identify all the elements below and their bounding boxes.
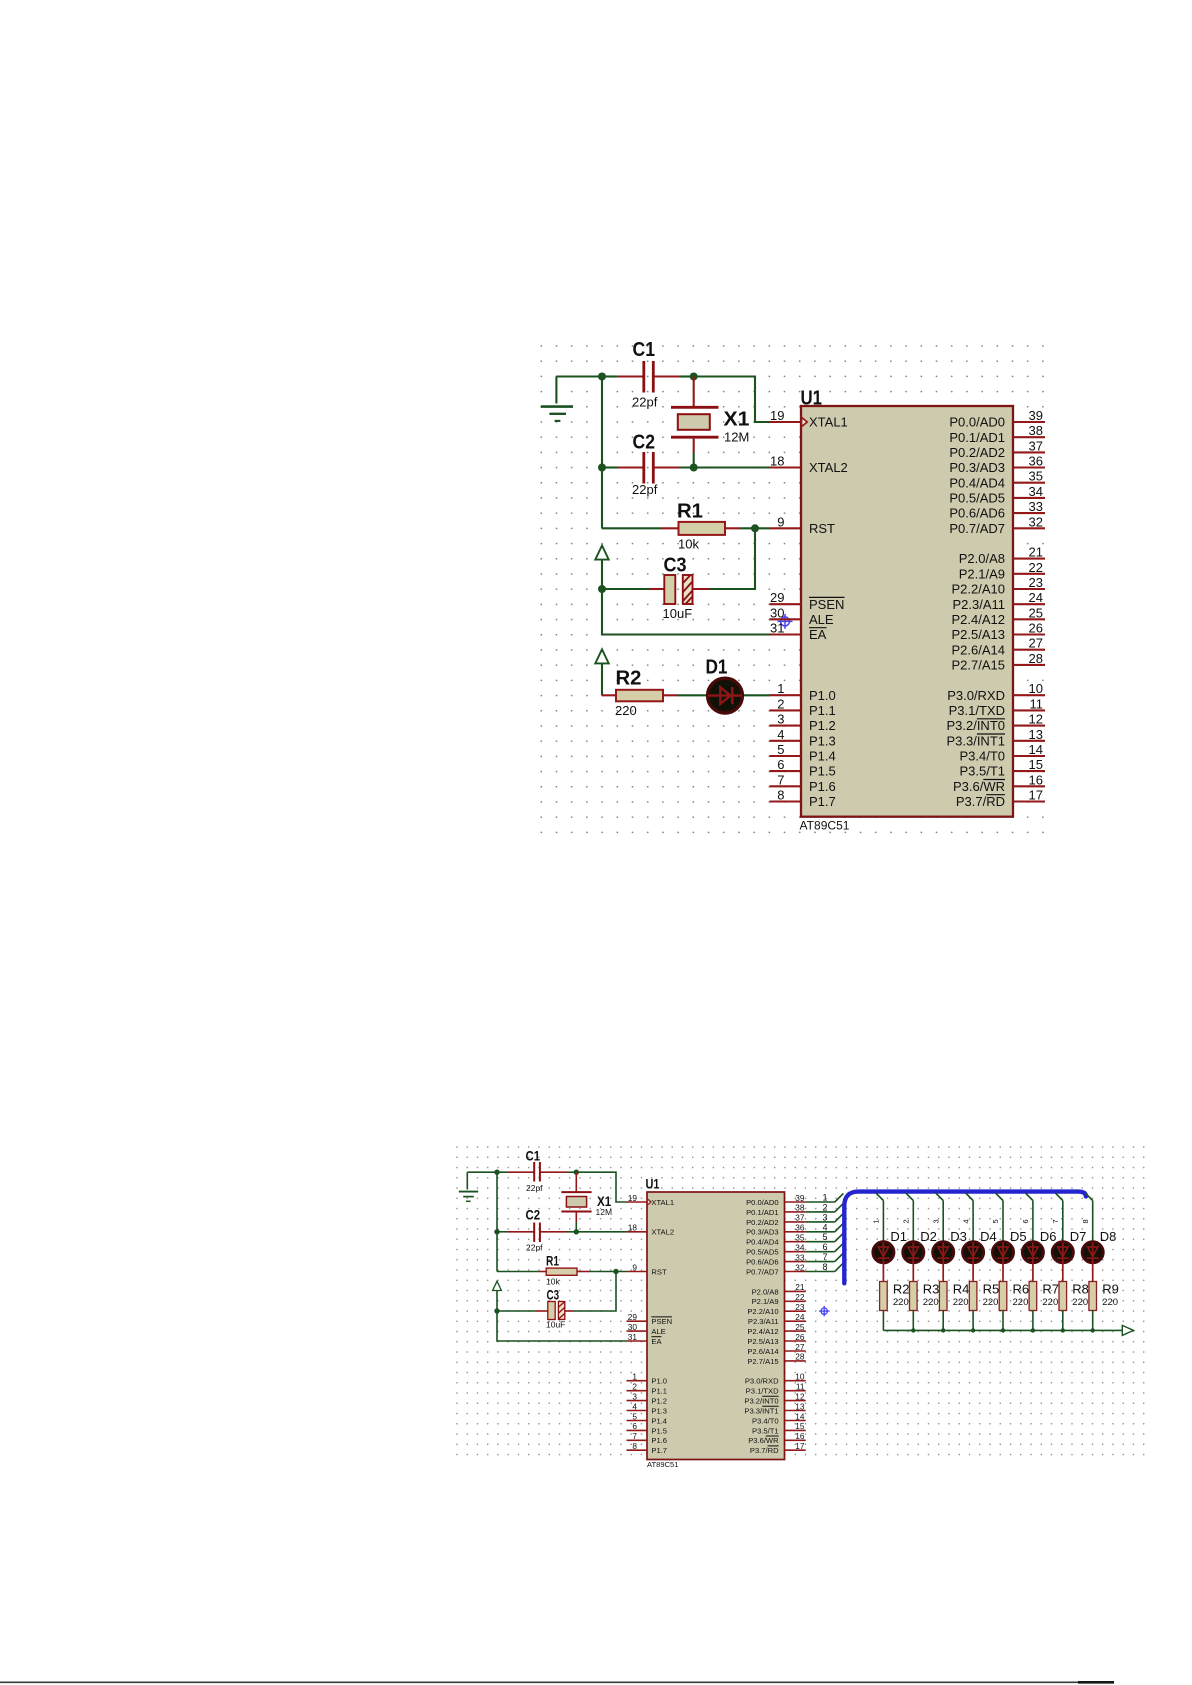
svg-text:ALE: ALE	[651, 1327, 665, 1336]
svg-text:26: 26	[795, 1332, 805, 1342]
svg-text:12: 12	[795, 1391, 805, 1401]
svg-text:U1: U1	[646, 1177, 660, 1192]
svg-text:D1: D1	[890, 1229, 907, 1244]
svg-text:P1.0: P1.0	[651, 1377, 667, 1386]
svg-text:R2: R2	[893, 1282, 910, 1297]
svg-text:AT89C51: AT89C51	[647, 1462, 679, 1469]
svg-text:17: 17	[795, 1441, 805, 1451]
svg-text:P2.1/A9: P2.1/A9	[752, 1297, 779, 1306]
svg-text:P3.6/WR: P3.6/WR	[953, 779, 1005, 794]
svg-text:P2.2/A10: P2.2/A10	[747, 1307, 778, 1316]
svg-text:P3.2/INT0: P3.2/INT0	[946, 718, 1005, 733]
svg-text:XTAL1: XTAL1	[809, 415, 848, 430]
svg-text:34: 34	[1029, 484, 1043, 499]
svg-text:34: 34	[795, 1243, 805, 1253]
svg-text:2: 2	[902, 1219, 911, 1223]
svg-text:P1.3: P1.3	[651, 1406, 667, 1415]
svg-text:10k: 10k	[546, 1277, 560, 1287]
svg-text:12M: 12M	[724, 430, 749, 445]
svg-text:R1: R1	[546, 1253, 559, 1268]
svg-text:10uF: 10uF	[546, 1320, 565, 1330]
svg-text:R7: R7	[1042, 1282, 1059, 1297]
svg-text:7: 7	[777, 772, 784, 787]
svg-text:P0.7/AD7: P0.7/AD7	[746, 1267, 779, 1276]
svg-text:P1.7: P1.7	[651, 1446, 667, 1455]
svg-text:7: 7	[632, 1431, 637, 1441]
svg-text:220: 220	[983, 1297, 999, 1308]
svg-text:P0.0/AD0: P0.0/AD0	[949, 415, 1005, 430]
svg-text:U1: U1	[801, 388, 823, 410]
svg-text:C3: C3	[664, 555, 687, 577]
svg-text:P0.2/AD2: P0.2/AD2	[746, 1218, 779, 1227]
svg-text:27: 27	[1029, 636, 1043, 651]
svg-text:35: 35	[795, 1233, 805, 1243]
svg-text:1: 1	[872, 1219, 881, 1223]
svg-text:28: 28	[1029, 651, 1043, 666]
svg-text:P3.3/INT1: P3.3/INT1	[946, 733, 1005, 748]
svg-text:D8: D8	[1100, 1229, 1117, 1244]
svg-text:23: 23	[795, 1302, 805, 1312]
svg-text:18: 18	[770, 454, 784, 469]
svg-text:1: 1	[632, 1372, 637, 1382]
svg-text:8: 8	[777, 788, 784, 803]
svg-text:13: 13	[1029, 727, 1043, 742]
svg-text:2: 2	[777, 696, 784, 711]
svg-text:P3.0/RXD: P3.0/RXD	[947, 688, 1005, 703]
svg-text:18: 18	[628, 1223, 638, 1233]
svg-text:P0.2/AD2: P0.2/AD2	[949, 445, 1005, 460]
svg-text:5: 5	[632, 1411, 637, 1421]
svg-text:P3.1/TXD: P3.1/TXD	[746, 1387, 779, 1396]
svg-text:P1.0: P1.0	[809, 688, 836, 703]
svg-text:10: 10	[795, 1372, 805, 1382]
svg-text:21: 21	[795, 1282, 805, 1292]
svg-text:16: 16	[795, 1431, 805, 1441]
svg-text:1: 1	[777, 681, 784, 696]
svg-text:220: 220	[1072, 1297, 1088, 1308]
svg-text:38: 38	[795, 1203, 805, 1213]
svg-text:12M: 12M	[596, 1207, 613, 1217]
svg-text:RST: RST	[809, 521, 835, 536]
svg-text:11: 11	[796, 1382, 805, 1392]
svg-text:P2.5/A13: P2.5/A13	[747, 1337, 778, 1346]
svg-text:15: 15	[1029, 757, 1043, 772]
svg-text:11: 11	[1030, 696, 1044, 711]
svg-text:27: 27	[795, 1342, 805, 1352]
svg-text:R1: R1	[677, 501, 703, 523]
svg-text:P0.6/AD6: P0.6/AD6	[949, 506, 1005, 521]
svg-text:23: 23	[1029, 575, 1043, 590]
svg-text:29: 29	[628, 1312, 638, 1322]
svg-text:P2.7/A15: P2.7/A15	[952, 658, 1006, 673]
svg-text:220: 220	[893, 1297, 909, 1308]
svg-text:3: 3	[822, 1212, 827, 1222]
svg-text:P0.4/AD4: P0.4/AD4	[949, 475, 1005, 490]
svg-text:P0.1/AD1: P0.1/AD1	[949, 430, 1005, 445]
svg-text:XTAL2: XTAL2	[809, 460, 848, 475]
svg-text:D7: D7	[1070, 1229, 1087, 1244]
svg-text:19: 19	[628, 1193, 638, 1203]
svg-text:X1: X1	[724, 409, 750, 431]
svg-text:P0.0/AD0: P0.0/AD0	[746, 1198, 779, 1207]
svg-text:3: 3	[931, 1219, 940, 1223]
svg-text:R2: R2	[616, 668, 642, 690]
svg-text:31: 31	[628, 1332, 638, 1342]
svg-text:4: 4	[961, 1219, 970, 1223]
svg-text:10k: 10k	[678, 537, 699, 552]
svg-text:4: 4	[632, 1401, 637, 1411]
svg-text:C3: C3	[547, 1287, 560, 1302]
svg-text:P1.3: P1.3	[809, 733, 836, 748]
svg-text:2: 2	[822, 1202, 827, 1212]
svg-text:22: 22	[795, 1292, 805, 1302]
svg-text:33: 33	[1029, 499, 1043, 514]
svg-text:P3.3/INT1: P3.3/INT1	[744, 1406, 778, 1415]
svg-text:6: 6	[822, 1242, 827, 1252]
svg-text:D2: D2	[920, 1229, 937, 1244]
svg-text:9: 9	[632, 1262, 637, 1272]
svg-text:D6: D6	[1040, 1229, 1057, 1244]
svg-text:29: 29	[770, 590, 784, 605]
svg-text:P2.4/A12: P2.4/A12	[952, 612, 1006, 627]
svg-text:5: 5	[777, 742, 784, 757]
svg-text:P2.7/A15: P2.7/A15	[747, 1357, 778, 1366]
svg-text:D4: D4	[980, 1229, 997, 1244]
svg-text:D5: D5	[1010, 1229, 1027, 1244]
svg-text:10: 10	[1029, 681, 1043, 696]
svg-text:XTAL2: XTAL2	[651, 1228, 674, 1237]
svg-text:P3.5/T1: P3.5/T1	[752, 1426, 779, 1435]
svg-text:EA: EA	[651, 1337, 662, 1346]
svg-text:P0.6/AD6: P0.6/AD6	[746, 1258, 779, 1267]
svg-text:220: 220	[923, 1297, 939, 1308]
svg-text:P0.7/AD7: P0.7/AD7	[949, 521, 1005, 536]
svg-text:P3.5/T1: P3.5/T1	[959, 764, 1005, 779]
svg-text:P2.0/A8: P2.0/A8	[959, 551, 1005, 566]
svg-text:P2.4/A12: P2.4/A12	[747, 1327, 778, 1336]
svg-text:7: 7	[1051, 1219, 1060, 1223]
svg-text:22pf: 22pf	[632, 482, 658, 497]
svg-text:D3: D3	[950, 1229, 967, 1244]
svg-text:24: 24	[1029, 590, 1043, 605]
svg-text:P1.1: P1.1	[651, 1387, 667, 1396]
svg-text:6: 6	[632, 1421, 637, 1431]
svg-text:13: 13	[795, 1401, 805, 1411]
svg-text:3: 3	[632, 1391, 637, 1401]
svg-text:4: 4	[822, 1222, 827, 1232]
svg-text:P1.6: P1.6	[651, 1436, 667, 1445]
svg-text:P3.1/TXD: P3.1/TXD	[949, 703, 1005, 718]
svg-text:P1.6: P1.6	[809, 779, 836, 794]
svg-text:220: 220	[615, 703, 637, 718]
svg-text:22pf: 22pf	[632, 395, 658, 410]
svg-text:RST: RST	[651, 1267, 667, 1276]
svg-text:1: 1	[822, 1193, 827, 1203]
svg-text:P3.7/RD: P3.7/RD	[956, 794, 1005, 809]
svg-text:30: 30	[770, 605, 784, 620]
svg-text:P0.3/AD3: P0.3/AD3	[949, 460, 1005, 475]
svg-text:35: 35	[1029, 469, 1043, 484]
svg-text:P2.5/A13: P2.5/A13	[952, 627, 1006, 642]
svg-text:P3.4/T0: P3.4/T0	[752, 1416, 779, 1425]
svg-text:32: 32	[1029, 514, 1043, 529]
svg-text:P1.5: P1.5	[809, 764, 836, 779]
svg-text:25: 25	[795, 1322, 805, 1332]
svg-text:R9: R9	[1102, 1282, 1119, 1297]
svg-text:15: 15	[795, 1421, 805, 1431]
svg-text:6: 6	[1021, 1219, 1030, 1223]
svg-text:19: 19	[770, 408, 784, 423]
svg-text:39: 39	[795, 1193, 805, 1203]
svg-text:22: 22	[1029, 560, 1043, 575]
svg-text:P1.5: P1.5	[651, 1426, 667, 1435]
svg-text:AT89C51: AT89C51	[800, 819, 850, 833]
svg-text:P2.0/A8: P2.0/A8	[752, 1287, 779, 1296]
svg-text:P2.3/A11: P2.3/A11	[748, 1317, 779, 1326]
svg-text:P1.2: P1.2	[809, 718, 836, 733]
svg-text:D1: D1	[706, 657, 728, 679]
svg-text:7: 7	[822, 1252, 827, 1262]
svg-text:P0.3/AD3: P0.3/AD3	[746, 1228, 779, 1237]
svg-text:P1.1: P1.1	[809, 703, 836, 718]
svg-text:39: 39	[1029, 408, 1043, 423]
svg-text:36: 36	[795, 1223, 805, 1233]
svg-text:26: 26	[1029, 621, 1043, 636]
svg-text:P1.7: P1.7	[809, 794, 836, 809]
svg-text:31: 31	[770, 621, 784, 636]
svg-text:C1: C1	[526, 1148, 541, 1163]
svg-text:9: 9	[777, 514, 784, 529]
svg-text:16: 16	[1029, 772, 1043, 787]
svg-text:P2.6/A14: P2.6/A14	[952, 642, 1006, 657]
svg-text:5: 5	[991, 1219, 1000, 1223]
svg-text:33: 33	[795, 1252, 805, 1262]
svg-text:ALE: ALE	[809, 612, 834, 627]
svg-text:14: 14	[1029, 742, 1043, 757]
svg-text:8: 8	[632, 1441, 637, 1451]
svg-text:5: 5	[822, 1232, 827, 1242]
svg-text:P3.6/WR: P3.6/WR	[748, 1436, 779, 1445]
svg-text:PSEN: PSEN	[809, 597, 844, 612]
svg-text:4: 4	[777, 727, 784, 742]
svg-text:220: 220	[1042, 1297, 1058, 1308]
svg-text:C1: C1	[633, 339, 656, 361]
svg-text:22pf: 22pf	[526, 1242, 543, 1252]
svg-text:P2.2/A10: P2.2/A10	[952, 582, 1006, 597]
svg-text:P2.1/A9: P2.1/A9	[959, 566, 1005, 581]
svg-text:PSEN: PSEN	[651, 1317, 672, 1326]
svg-text:XTAL1: XTAL1	[651, 1198, 674, 1207]
svg-text:P0.1/AD1: P0.1/AD1	[746, 1208, 779, 1217]
svg-text:P3.0/RXD: P3.0/RXD	[745, 1377, 779, 1386]
svg-text:P3.4/T0: P3.4/T0	[959, 749, 1005, 764]
svg-text:P1.4: P1.4	[651, 1416, 667, 1425]
svg-text:24: 24	[795, 1312, 805, 1322]
svg-text:R6: R6	[1013, 1282, 1030, 1297]
svg-text:21: 21	[1029, 545, 1043, 560]
svg-text:30: 30	[628, 1322, 638, 1332]
svg-text:28: 28	[795, 1352, 805, 1362]
svg-text:25: 25	[1029, 605, 1043, 620]
svg-text:R4: R4	[953, 1282, 970, 1297]
svg-text:P0.5/AD5: P0.5/AD5	[949, 491, 1005, 506]
svg-text:220: 220	[1102, 1297, 1118, 1308]
svg-text:37: 37	[795, 1213, 805, 1223]
svg-text:6: 6	[777, 757, 784, 772]
svg-text:C2: C2	[526, 1207, 541, 1222]
svg-text:R8: R8	[1072, 1282, 1089, 1297]
svg-text:P3.2/INT0: P3.2/INT0	[744, 1397, 778, 1406]
svg-text:8: 8	[1081, 1219, 1090, 1223]
svg-text:P3.7/RD: P3.7/RD	[750, 1446, 779, 1455]
svg-text:32: 32	[795, 1262, 805, 1272]
svg-text:38: 38	[1029, 423, 1043, 438]
svg-text:P1.4: P1.4	[809, 749, 836, 764]
svg-text:12: 12	[1029, 712, 1043, 727]
svg-text:P2.6/A14: P2.6/A14	[747, 1347, 778, 1356]
svg-text:37: 37	[1029, 438, 1043, 453]
svg-text:P2.3/A11: P2.3/A11	[952, 597, 1005, 612]
svg-text:P0.5/AD5: P0.5/AD5	[746, 1248, 779, 1257]
svg-text:C2: C2	[633, 432, 656, 454]
svg-text:220: 220	[953, 1297, 969, 1308]
svg-text:EA: EA	[809, 627, 827, 642]
svg-text:P0.4/AD4: P0.4/AD4	[746, 1238, 779, 1247]
svg-text:R5: R5	[983, 1282, 1000, 1297]
svg-text:14: 14	[795, 1411, 805, 1421]
svg-text:36: 36	[1029, 454, 1043, 469]
svg-text:2: 2	[632, 1382, 637, 1392]
svg-text:P1.2: P1.2	[651, 1397, 667, 1406]
svg-text:17: 17	[1029, 788, 1043, 803]
svg-text:22pf: 22pf	[526, 1183, 543, 1193]
svg-text:220: 220	[1013, 1297, 1029, 1308]
svg-text:10uF: 10uF	[663, 606, 693, 621]
svg-text:8: 8	[822, 1262, 827, 1272]
svg-text:3: 3	[777, 712, 784, 727]
svg-text:R3: R3	[923, 1282, 940, 1297]
